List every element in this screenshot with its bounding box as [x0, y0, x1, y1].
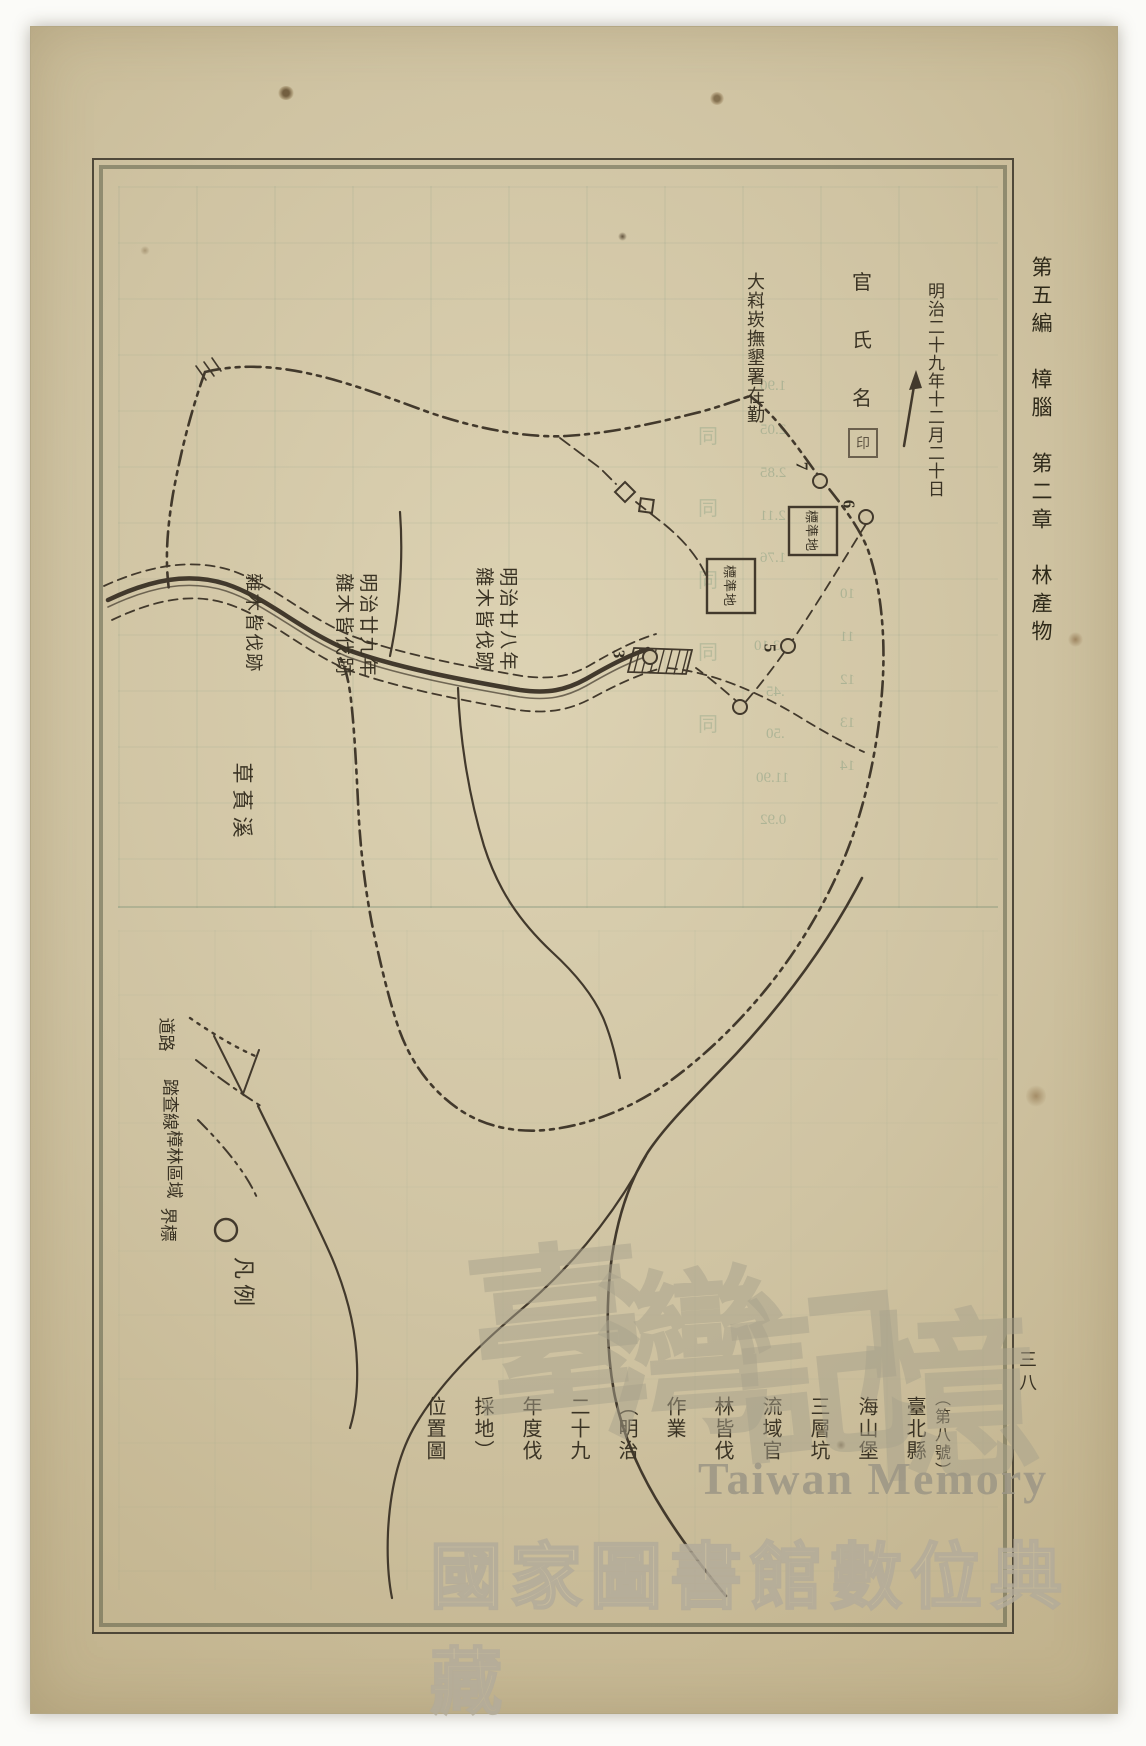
scanned-page: 1.90 2.05 2.85 2.11 1.76 23.10 .45 .50 1… — [0, 0, 1146, 1746]
seal-stamp: 印 — [848, 428, 878, 458]
stream-upper — [390, 512, 401, 656]
boundary-marker-circle-4 — [733, 700, 747, 714]
legend-dash-dot-dot-line — [198, 1120, 258, 1200]
cut-site-year: 明治廿八年 — [495, 567, 519, 672]
boundary-marker-circle-5 — [781, 639, 795, 653]
cut-site-label-2: 明治廿八年 雜木皆伐跡 — [471, 550, 519, 690]
stream-branch-southwest — [388, 1156, 646, 1598]
north-arrow-icon — [904, 370, 922, 446]
side-header: 第五編 樟腦 第二章 林產物 — [1026, 256, 1056, 648]
inner-dashed-line — [560, 438, 708, 580]
date-annotation: 明治二十九年十二月二十日 — [922, 282, 947, 498]
station-number-3: 3 — [608, 650, 628, 659]
map-drawing — [0, 0, 1146, 1746]
cut-site-label-1: 明治廿九年 雜木皆伐跡 — [331, 556, 379, 696]
stream-fork-mark — [214, 1036, 259, 1094]
station-number-7: 7 — [791, 462, 811, 471]
standard-plot-label-1: 標準地 — [791, 509, 835, 553]
cut-site-year: 明治廿九年 — [355, 573, 379, 678]
office-annotation: 大嵙崁撫墾署在勤 — [742, 272, 768, 424]
river-name-label: 草萯溪 — [228, 748, 258, 858]
cut-site-text: 雜木皆伐跡 — [331, 573, 355, 678]
region-boundary-line — [167, 367, 884, 1131]
legend-label-boundary-marker: 界標 — [158, 1185, 183, 1265]
official-name-label: 名 — [852, 382, 872, 411]
station-number-5: 5 — [759, 644, 779, 653]
legend-circle-symbol — [215, 1219, 237, 1241]
cut-site-text: 雜木皆伐跡 — [242, 573, 265, 673]
marker-trail-dashed — [696, 524, 866, 706]
legend-title: 凡例 — [229, 1245, 261, 1323]
official-rank-label: 官 — [852, 266, 872, 295]
boundary-marker-circle-7 — [813, 474, 827, 488]
seal-character: 印 — [856, 433, 870, 453]
stream-middle — [458, 688, 620, 1078]
boundary-marker-circle-3 — [643, 650, 657, 664]
legend-dotted-line — [190, 1018, 260, 1058]
boundary-marker-circle-6 — [859, 510, 873, 524]
diamond-marker — [615, 482, 635, 502]
cut-site-text: 雜木皆伐跡 — [471, 567, 495, 672]
figure-title: 臺北縣海山堡三層坑流域官林皆伐作業（明治二十九年度伐採地）位置圖 — [378, 1396, 938, 1472]
stream-left — [258, 1106, 357, 1428]
road-dashed-lower — [112, 598, 662, 711]
cut-site-label-3: 雜木皆伐跡 — [242, 558, 265, 688]
stream-main-south — [608, 878, 862, 1596]
standard-plot-label-2: 標準地 — [709, 564, 753, 608]
road-dashed-southeast — [668, 668, 864, 752]
page-number: 三八 — [1014, 1350, 1040, 1396]
official-surname-label: 氏 — [852, 324, 872, 353]
station-number-6: 6 — [838, 500, 858, 509]
